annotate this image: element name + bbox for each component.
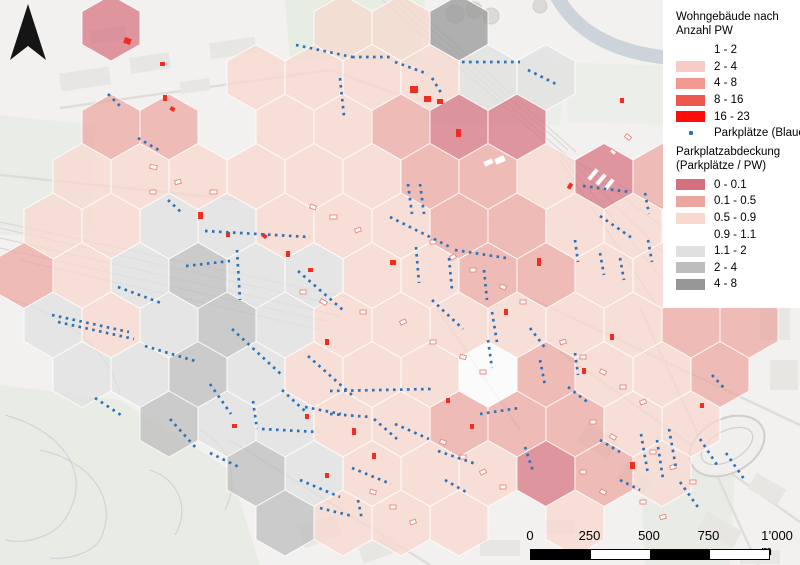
legend-class-label: 1 - 2: [714, 44, 737, 56]
legend-buildings-item-4: 16 - 23: [676, 108, 800, 125]
legend-class-label: 2 - 4: [714, 61, 737, 73]
legend-title-buildings: Wohngebäude nach Anzahl PW: [676, 10, 800, 38]
legend-coverage-item-5: 2 - 4: [676, 260, 800, 277]
legend-buildings-item-3: 8 - 16: [676, 92, 800, 109]
legend-swatch: [676, 45, 705, 56]
legend-swatch: [676, 262, 705, 273]
north-arrow-icon: [10, 4, 46, 60]
legend-class-label: 0.1 - 0.5: [714, 195, 756, 207]
legend-buildings-item-1: 2 - 4: [676, 59, 800, 76]
legend-coverage-item-2: 0.5 - 0.9: [676, 210, 800, 227]
legend-class-label: 0.5 - 0.9: [714, 212, 756, 224]
legend-coverage-item-4: 1.1 - 2: [676, 243, 800, 260]
legend-panel: Wohngebäude nach Anzahl PW 1 - 22 - 44 -…: [663, 0, 800, 308]
legend-class-label: 1.1 - 2: [714, 245, 747, 257]
legend-swatch: [676, 213, 705, 224]
legend-class-label: 16 - 23: [714, 111, 750, 123]
legend-swatch: [676, 279, 705, 290]
legend-swatch: [676, 179, 705, 190]
legend-coverage-item-3: 0.9 - 1.1: [676, 226, 800, 243]
legend-coverage-item-6: 4 - 8: [676, 276, 800, 293]
legend-coverage-classes: 0 - 0.10.1 - 0.50.5 - 0.90.9 - 1.11.1 - …: [676, 177, 800, 293]
legend-swatch: [676, 229, 705, 240]
legend-swatch: [676, 111, 705, 122]
parking-dot-icon: [676, 131, 705, 135]
legend-swatch: [676, 246, 705, 257]
legend-swatch: [676, 196, 705, 207]
legend-class-label: 0 - 0.1: [714, 179, 747, 191]
legend-class-label: 0.9 - 1.1: [714, 229, 756, 241]
legend-buildings-item-2: 4 - 8: [676, 75, 800, 92]
legend-buildings-item-0: 1 - 2: [676, 42, 800, 59]
legend-class-label: 2 - 4: [714, 262, 737, 274]
map-layout-canvas: Wohngebäude nach Anzahl PW 1 - 22 - 44 -…: [0, 0, 800, 565]
legend-swatch: [676, 78, 705, 89]
legend-title-coverage: Parkplatzabdeckung (Parkplätze / PW): [676, 145, 800, 173]
legend-buildings-classes: 1 - 22 - 44 - 88 - 1616 - 23: [676, 42, 800, 125]
legend-class-label: 4 - 8: [714, 77, 737, 89]
legend-item-parking-dot: Parkplätze (Blaue Zone): [676, 125, 800, 142]
legend-swatch: [676, 61, 705, 72]
legend-coverage-item-1: 0.1 - 0.5: [676, 193, 800, 210]
legend-class-label: 4 - 8: [714, 278, 737, 290]
legend-swatch: [676, 95, 705, 106]
legend-coverage-item-0: 0 - 0.1: [676, 177, 800, 194]
legend-class-label: 8 - 16: [714, 94, 743, 106]
